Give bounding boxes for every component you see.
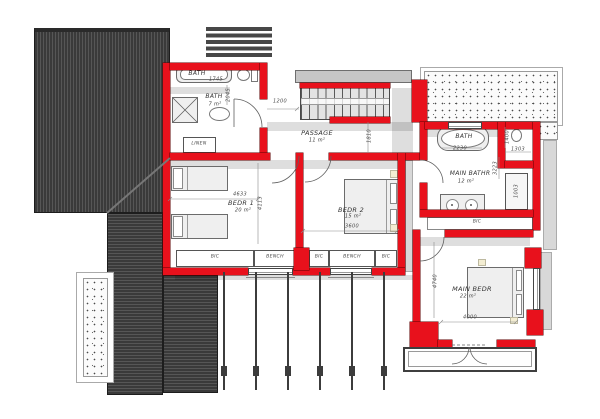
dim-bedr1-d: 4113 <box>259 196 264 210</box>
wall <box>527 310 543 335</box>
bed-single-1-icon <box>171 166 228 191</box>
stair-top-wall <box>295 70 412 83</box>
wall <box>170 153 270 160</box>
area-label-bath: 7 m² <box>209 103 222 108</box>
dim-stairs: 1200 <box>273 100 287 105</box>
roof-main <box>34 28 170 213</box>
post-foot <box>381 366 387 376</box>
dim-main-bed-w: 4000 <box>463 316 477 321</box>
toilet-tank-icon <box>251 68 258 82</box>
side-table-icon <box>390 170 398 178</box>
bed-single-2-icon <box>171 214 228 239</box>
main-bathtub-label: BATH <box>455 134 472 140</box>
side-table-icon <box>390 224 398 232</box>
post-foot <box>221 366 227 376</box>
wall <box>398 153 405 275</box>
wall <box>329 153 420 160</box>
post-foot <box>253 366 259 376</box>
storage-label-bic: BIC <box>382 256 391 261</box>
dim-closet: 1003 <box>515 184 520 198</box>
room-label-bedr2: BEDR 2 <box>338 207 364 214</box>
area-label-main-bed: 22 m² <box>460 295 476 300</box>
wall <box>413 230 420 325</box>
post-foot <box>349 366 355 376</box>
room-label-passage: PASSAGE <box>301 130 333 137</box>
bathtub-label: BATH <box>188 71 205 77</box>
main-bic-label: BIC <box>473 221 482 226</box>
dim-main-bath-d: 3223 <box>494 161 499 175</box>
shadow-bedr2 <box>303 160 398 169</box>
room-label-bedr1: BEDR 1 <box>228 200 254 207</box>
shadow-main-bed <box>420 237 530 246</box>
dim-passage: 1810 <box>368 129 373 143</box>
wall <box>163 63 170 275</box>
room-label-main-bed: MAIN BEDR <box>452 286 492 293</box>
storage-label-bench: BENCH <box>266 256 284 261</box>
storage-label-bic: BIC <box>315 256 324 261</box>
floor-plan-canvas: BATH 1745 BATH 7 m² 2045 LINEN 1200 PASS… <box>0 0 600 419</box>
dim-main-bed-d: 4740 <box>434 274 439 288</box>
eave-right <box>543 140 557 250</box>
post-foot <box>317 366 323 376</box>
area-label-bedr1: 20 m² <box>235 209 251 214</box>
roof-wing-upper <box>107 213 163 395</box>
window <box>448 122 482 129</box>
patio-slab <box>83 278 108 377</box>
dim-bedr2-w: 3600 <box>345 225 359 230</box>
eave-mid <box>405 160 413 272</box>
post-foot <box>285 366 291 376</box>
roof-wing-lower <box>163 275 218 393</box>
shower-icon <box>172 97 198 123</box>
dim-bedr1-w: 4633 <box>233 193 247 198</box>
wall <box>260 63 267 99</box>
wall <box>525 248 541 268</box>
linen-label: LINEN <box>191 143 206 148</box>
stair-rail <box>301 98 389 105</box>
wall <box>410 322 438 347</box>
shadow-below-bedrooms <box>175 275 415 280</box>
shadow-corridor <box>392 88 413 153</box>
toilet-bowl-icon <box>237 69 250 81</box>
wall <box>497 340 535 347</box>
room-label-bath: BATH <box>205 94 222 100</box>
wall <box>300 83 390 88</box>
dim-wc-d: 1400 <box>506 130 511 144</box>
wall <box>420 183 427 212</box>
storage-label-bic: BIC <box>211 256 220 261</box>
room-label-main-bath: MAIN BATHR <box>450 171 491 177</box>
balcony-inner <box>408 351 532 367</box>
area-label-passage: 11 m² <box>309 139 325 144</box>
side-table-icon <box>478 259 486 266</box>
side-table-icon <box>510 317 518 324</box>
window <box>533 268 540 310</box>
wall <box>533 122 540 230</box>
basin-icon <box>209 107 230 121</box>
wall <box>498 122 505 168</box>
wall <box>330 117 390 123</box>
terrace-slab <box>424 71 558 122</box>
wall <box>420 210 533 217</box>
wall <box>294 248 309 270</box>
pergola-louvers-icon <box>206 27 272 58</box>
dim-wc-w: 1303 <box>511 148 525 153</box>
area-label-main-bath: 12 m² <box>458 180 474 185</box>
wall <box>170 63 267 70</box>
wall <box>438 340 452 347</box>
wall <box>505 161 533 168</box>
dim-bath-depth: 2045 <box>227 88 232 102</box>
wall <box>372 268 405 275</box>
dim-main-tub: 2230 <box>453 147 467 152</box>
area-label-bedr2: 15 m² <box>345 215 361 220</box>
wall <box>412 80 427 122</box>
dim-bath-tub: 1745 <box>209 78 223 83</box>
wall <box>163 268 248 275</box>
wall <box>445 230 533 237</box>
storage-label-bench: BENCH <box>343 256 361 261</box>
main-toilet-bowl-icon <box>511 129 522 142</box>
